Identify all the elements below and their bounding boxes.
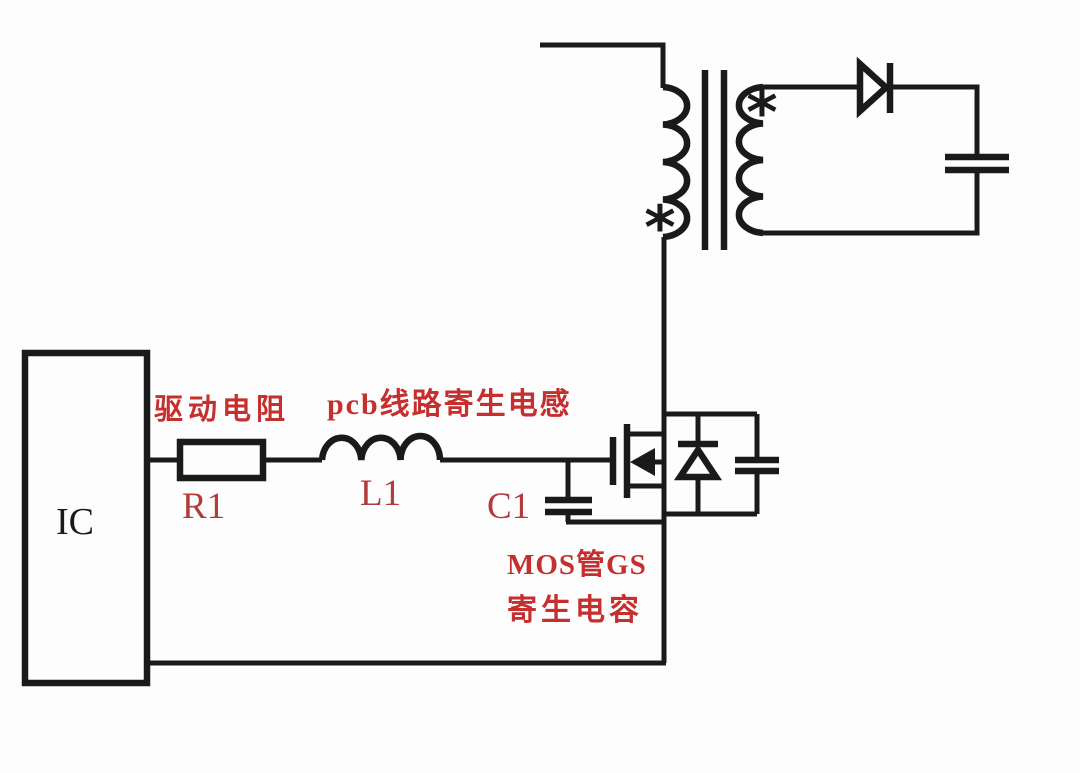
primary-top-input-wire [540, 45, 663, 88]
mosfet [613, 424, 664, 498]
secondary-output-loop [763, 63, 1009, 233]
drive-resistor [180, 442, 263, 478]
parasitic-inductor [322, 436, 440, 460]
mosfet-body-arrow [630, 448, 655, 476]
resistor-body [180, 442, 263, 478]
gs-capacitance-cn-label-line2: 寄生电容 [507, 593, 643, 627]
secondary-bottom-wire [763, 172, 977, 233]
output-capacitor [945, 157, 1009, 170]
transformer: * * [540, 45, 778, 263]
flyback-gate-drive-schematic: IC [0, 0, 1080, 773]
drive-resistor-ref-label: R1 [182, 486, 225, 527]
primary-polarity-dot: * [644, 193, 675, 263]
inductor-coil [322, 436, 440, 460]
body-diode-triangle [680, 450, 716, 477]
ic-block: IC [25, 353, 147, 683]
ds-capacitor [735, 414, 779, 514]
gs-capacitance-cn-label-line1: MOS管GS [507, 547, 647, 581]
pcb-inductance-cn-label: pcb线路寄生电感 [327, 387, 572, 421]
pcb-inductance-ref-label: L1 [360, 473, 401, 514]
annotations: 驱动电阻 R1 pcb线路寄生电感 L1 C1 MOS管GS 寄生电容 [154, 387, 647, 627]
gate-drive-path [147, 436, 611, 478]
body-diode [678, 414, 718, 514]
secondary-top-wire-right [891, 87, 977, 155]
drive-resistor-cn-label: 驱动电阻 [154, 393, 290, 426]
mosfet-package-box [664, 414, 779, 514]
circuit-canvas: IC [0, 0, 1080, 773]
gs-capacitance-ref-label: C1 [487, 486, 530, 527]
rectifier-diode-triangle [860, 64, 886, 111]
ic-label: IC [56, 501, 94, 543]
output-rectifier-diode [860, 63, 890, 113]
